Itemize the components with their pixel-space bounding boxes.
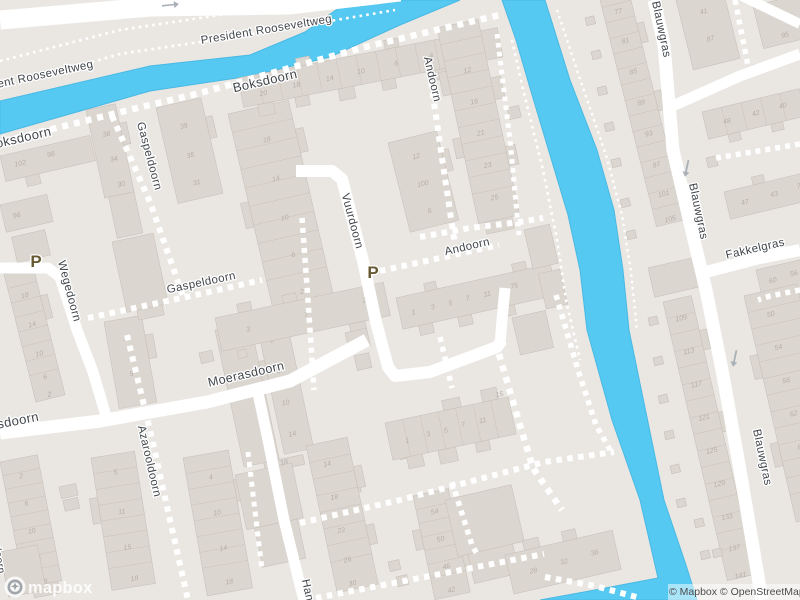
svg-text:7: 7 xyxy=(796,183,800,191)
svg-text:18: 18 xyxy=(130,575,139,583)
svg-text:10: 10 xyxy=(357,68,366,76)
svg-text:© Mapbox © OpenStreetMap: © Mapbox © OpenStreetMap xyxy=(669,586,800,598)
svg-text:P: P xyxy=(30,252,41,271)
svg-text:18: 18 xyxy=(225,578,234,586)
svg-text:14: 14 xyxy=(219,545,228,553)
svg-text:mapbox: mapbox xyxy=(28,579,93,597)
svg-text:14: 14 xyxy=(325,75,334,83)
svg-text:10: 10 xyxy=(27,527,36,535)
svg-text:11: 11 xyxy=(118,508,126,516)
svg-text:10: 10 xyxy=(213,509,222,517)
svg-text:11: 11 xyxy=(478,417,487,425)
svg-text:P: P xyxy=(367,263,378,282)
svg-text:15: 15 xyxy=(123,544,132,552)
svg-text:18: 18 xyxy=(292,81,301,89)
